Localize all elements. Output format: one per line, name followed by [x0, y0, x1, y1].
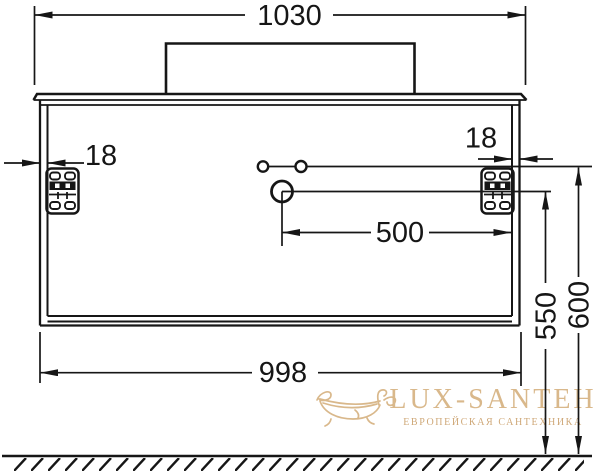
ground-hatch [2, 456, 592, 471]
faucet-hole-left [258, 161, 268, 171]
dimension-label-1030: 1030 [257, 0, 322, 32]
dimension-label-998: 998 [259, 357, 307, 389]
vanity-technical-drawing: LUX-SANTEH ЕВРОПЕЙСКАЯ САНТЕХНИКА [0, 0, 600, 472]
watermark-tagline-text: ЕВРОПЕЙСКАЯ САНТЕХНИКА [403, 416, 583, 428]
dimension-label-600: 600 [564, 281, 596, 329]
dimension-label-550: 550 [531, 292, 563, 340]
mounting-bracket-left [47, 169, 79, 214]
dimension-label-500: 500 [376, 217, 424, 249]
dimension-label-18-right: 18 [465, 123, 497, 155]
watermark-brand-text: LUX-SANTEH [389, 384, 596, 415]
faucet-hole-right [296, 161, 307, 172]
dimension-label-18-left: 18 [85, 140, 117, 172]
